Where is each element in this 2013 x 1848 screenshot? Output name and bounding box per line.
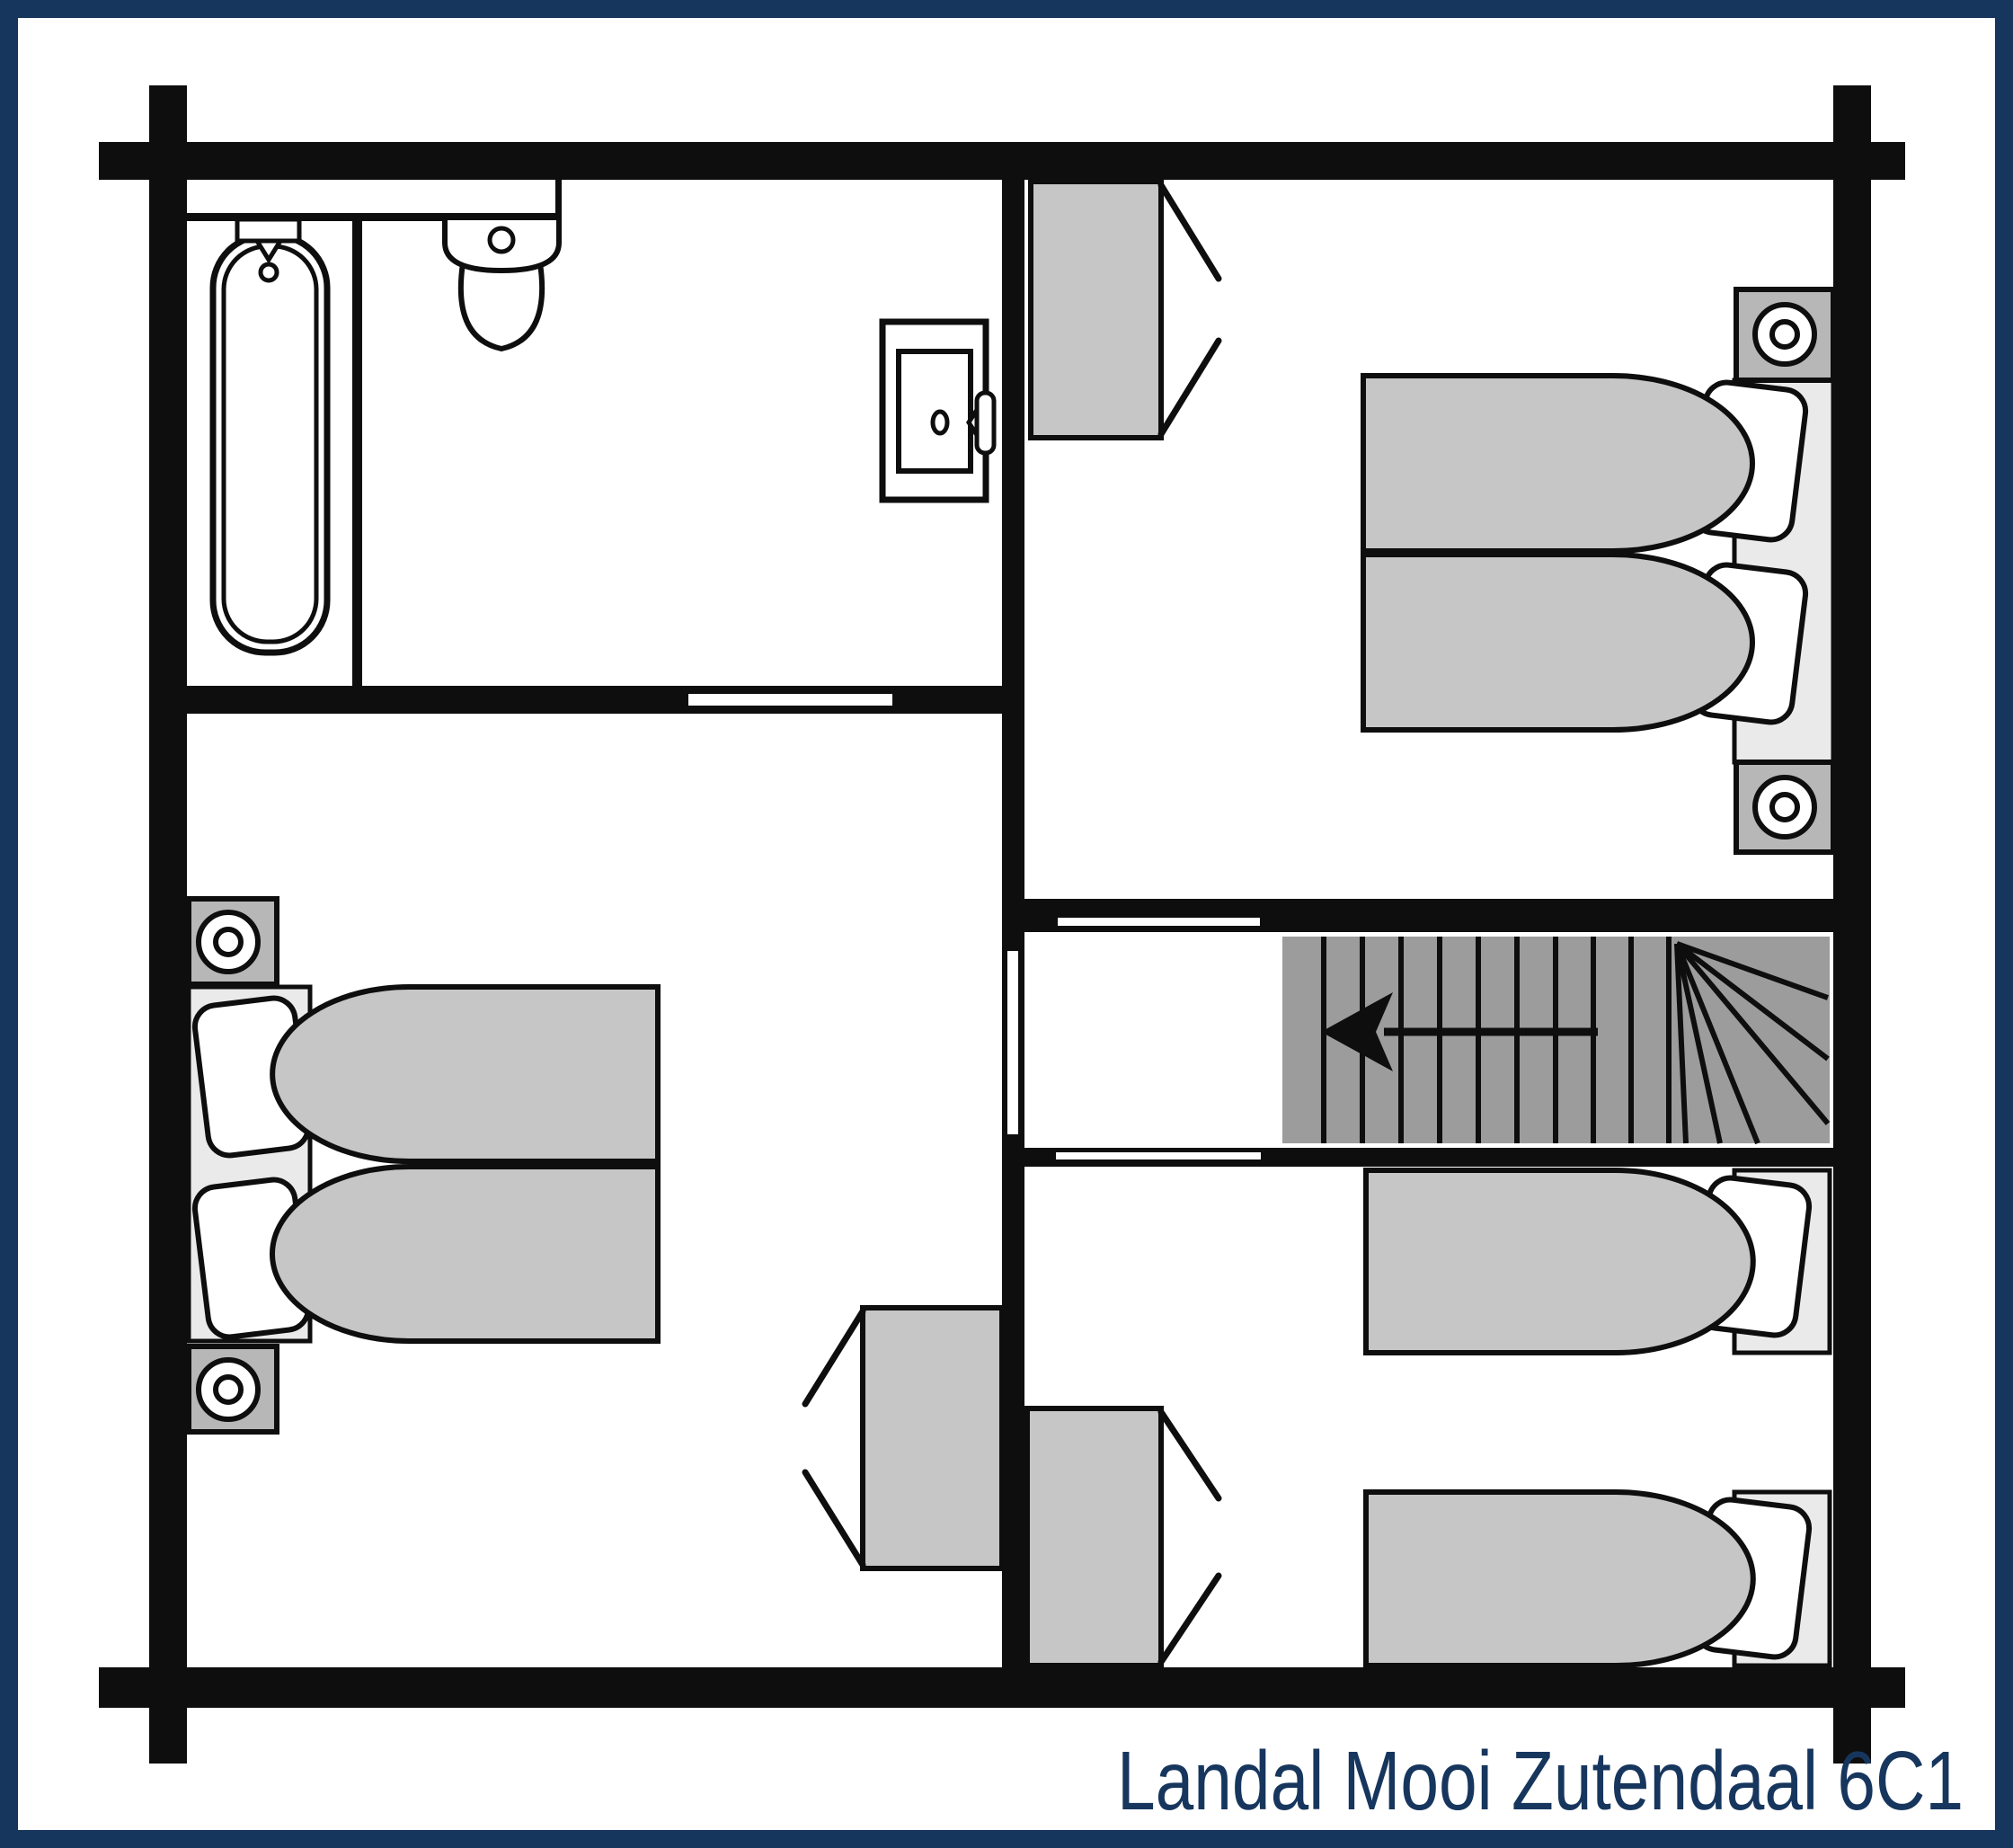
wall-outer-top <box>99 142 1905 180</box>
cabinet-latch <box>977 393 994 453</box>
wall-bath-duct-step <box>555 180 562 218</box>
wall-outer-right <box>1833 85 1871 1764</box>
single-bed-duvet <box>1366 1492 1753 1666</box>
cabinet-knob <box>933 412 947 433</box>
door-opening-bedroom-bottom-right <box>1056 1152 1261 1159</box>
door-opening-bedroom-top-right <box>1058 918 1260 926</box>
lamp-icon <box>216 1377 241 1402</box>
wall-bathtub-divider <box>352 213 362 686</box>
bathtub-drain <box>261 264 277 280</box>
door-opening-landing-west <box>1007 951 1018 1134</box>
plan-title: Landal Mooi Zutendaal 6C1 <box>1117 1734 1964 1827</box>
bed-duvet <box>272 987 658 1161</box>
bathtub-tap-bar <box>237 219 299 241</box>
bathtub <box>213 219 327 653</box>
wall-outer-left <box>149 85 187 1764</box>
wall-cabinet <box>882 322 994 500</box>
floorplan-drawing: Landal Mooi Zutendaal 6C1 <box>0 0 2013 1848</box>
wall-outer-bottom <box>99 1667 1905 1708</box>
bed-duvet <box>272 1167 658 1341</box>
wall-landing-north <box>1024 899 1833 932</box>
floorplan-page: Landal Mooi Zutendaal 6C1 <box>0 0 2013 1848</box>
lamp-icon <box>1772 322 1797 347</box>
wall-central-vertical <box>1002 180 1024 1667</box>
lamp-icon <box>216 929 241 955</box>
wall-bathroom-south <box>187 686 1024 714</box>
wardrobe <box>1031 182 1161 438</box>
wardrobe <box>863 1308 1002 1568</box>
bed-duvet <box>1363 555 1752 730</box>
staircase <box>1282 937 1830 1143</box>
door-opening-bathroom <box>688 694 892 706</box>
lamp-icon <box>1772 795 1797 820</box>
single-bed-duvet <box>1366 1170 1753 1353</box>
toilet-flush-button <box>490 228 513 252</box>
wardrobe <box>1027 1408 1161 1666</box>
cabinet-door <box>899 351 971 471</box>
bed-duvet <box>1363 376 1752 551</box>
